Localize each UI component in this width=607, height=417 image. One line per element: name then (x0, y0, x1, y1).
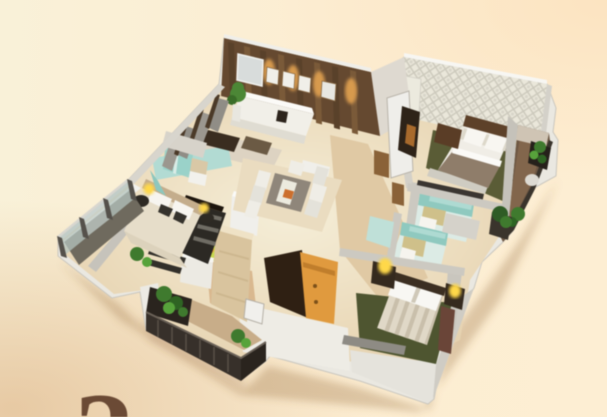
svg-text:2: 2 (74, 368, 134, 417)
